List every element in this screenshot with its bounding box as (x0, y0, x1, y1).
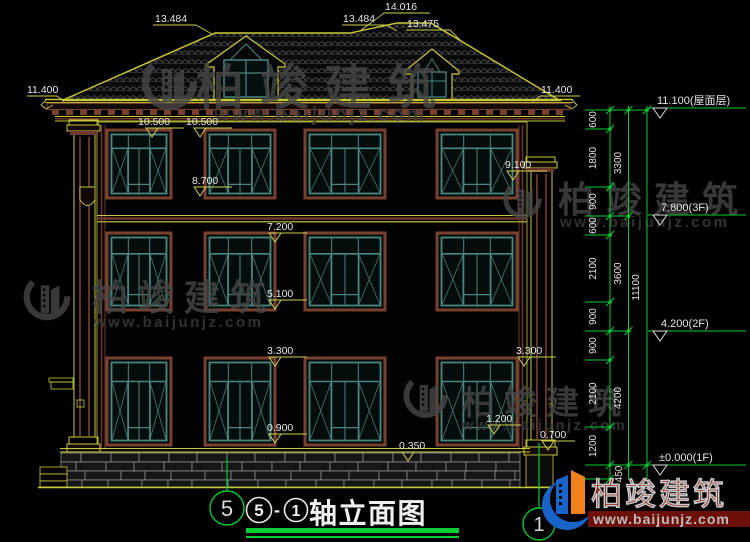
elevation-drawing: 柏竣建筑www.baijunjz.com柏竣建筑www.baijunjz.com… (0, 0, 750, 542)
stone (509, 453, 520, 462)
dentil-block (108, 110, 115, 115)
brand-logo: 柏竣建筑 www.baijunjz.com (542, 470, 750, 530)
spot-level-label: 3.300 (516, 345, 542, 357)
watermark-tower (429, 385, 437, 412)
dim-value: 2100 (588, 382, 599, 405)
stone (197, 453, 227, 462)
stone (255, 471, 291, 480)
dentil-block (556, 110, 563, 115)
watermark-window-dot (519, 201, 521, 203)
watermark-building-icon (27, 282, 68, 317)
stone (106, 462, 134, 471)
drawing-title: 5 - 1 轴立面图 (246, 497, 459, 538)
floor-level-label: 4.200(2F) (661, 318, 709, 330)
pilaster-shield-ornament (80, 187, 95, 206)
stone (374, 480, 402, 487)
cad-drawing-canvas: 柏竣建筑www.baijunjz.com柏竣建筑www.baijunjz.com… (0, 0, 750, 542)
dim-value: 900 (588, 337, 599, 354)
pilaster-base (69, 437, 98, 444)
watermark-window-dot (165, 92, 168, 95)
logo-building-right (571, 470, 585, 514)
watermark-window-dot (422, 398, 424, 400)
watermark-window-dot (165, 79, 168, 82)
stone (61, 453, 81, 462)
stone (145, 471, 171, 480)
logo-window-dot (559, 496, 562, 499)
stone (255, 453, 285, 462)
watermark-window-dot (43, 294, 45, 296)
stone (227, 453, 255, 462)
stone (330, 462, 358, 471)
dentil-block (52, 110, 59, 115)
dentil-block (164, 110, 171, 115)
title-text: 轴立面图 (309, 497, 427, 529)
floor-level-labels: 11.100(屋面层) 7.800(3F) 4.200(2F) ±0.000(1… (657, 94, 730, 464)
watermark-window-dot (422, 393, 424, 395)
dim-value: 1800 (588, 146, 599, 169)
stone (363, 453, 393, 462)
logo-window-dot (559, 484, 562, 487)
stone (465, 471, 495, 480)
stone (452, 480, 482, 487)
logo-window-dot (559, 502, 562, 505)
leader (196, 25, 212, 34)
stone (222, 462, 242, 471)
dim-value: 900 (588, 193, 599, 210)
watermark-window-dot (43, 305, 45, 307)
dentil-block (66, 110, 73, 115)
stone (321, 471, 349, 480)
stone (349, 471, 379, 480)
stone (121, 471, 145, 480)
roof-level-label: 13.475 (407, 18, 439, 30)
stone (169, 453, 197, 462)
stone (300, 462, 330, 471)
dim-value: 3300 (613, 151, 624, 174)
stone (82, 480, 108, 487)
dim-value: 600 (588, 111, 599, 128)
stone (192, 462, 222, 471)
watermark-window-dot (165, 73, 168, 76)
watermark-tower (51, 285, 60, 313)
watermark-window-dot (422, 388, 424, 390)
watermark: 柏竣建筑www.baijunjz.com (27, 277, 276, 331)
dentil-block (136, 110, 143, 115)
stone (81, 453, 111, 462)
spot-level-label: 5.100 (267, 288, 293, 300)
stone (379, 471, 407, 480)
stone (85, 471, 121, 480)
stone (416, 462, 446, 471)
logo-building-left (556, 475, 568, 514)
watermark: 柏竣建筑www.baijunjz.com (506, 179, 750, 231)
axis-bubble-left-digit: 5 (221, 496, 233, 521)
side-ledge (49, 378, 73, 382)
stone (515, 471, 520, 480)
watermark-brand-text: 柏竣建筑 (92, 277, 276, 318)
spot-level-label: 10.500 (138, 116, 170, 128)
stone (242, 462, 272, 471)
spot-level-label: 9.100 (505, 159, 531, 171)
stone (482, 480, 510, 487)
stone (510, 480, 520, 487)
title-dash: - (274, 500, 280, 520)
watermark-site-text: www.baijunjz.com (213, 104, 427, 126)
side-ledge (51, 382, 73, 389)
spot-level-label: 7.200 (267, 221, 293, 233)
stone (496, 462, 520, 471)
roof-level-label: 13.484 (343, 13, 375, 25)
stone (111, 453, 139, 462)
pilaster-capital (67, 125, 100, 131)
entry-step (40, 467, 67, 474)
level-triangle (653, 108, 667, 118)
stone (393, 453, 421, 462)
dim-value: 600 (588, 217, 599, 234)
dentil-block (500, 110, 507, 115)
stone (76, 462, 106, 471)
stone (407, 471, 437, 480)
axis-circle-from-digit: 5 (254, 501, 263, 520)
stone (285, 453, 305, 462)
stone (192, 480, 228, 487)
dim-value: 2100 (588, 257, 599, 280)
stone (171, 471, 205, 480)
spot-level-label: 11.400 (27, 84, 58, 96)
spot-level-label: 0.350 (399, 440, 425, 452)
stone (316, 480, 344, 487)
stone (139, 453, 169, 462)
stone (358, 462, 388, 471)
stone (164, 462, 192, 471)
watermark-window-dot (519, 206, 521, 208)
stone (451, 453, 479, 462)
spot-level-label: 0.900 (267, 422, 293, 434)
watermark-window-dot (519, 197, 521, 199)
stone (108, 480, 142, 487)
watermark-tower (526, 190, 533, 213)
logo-brand-text: 柏竣建筑 (591, 477, 727, 512)
stone (402, 480, 432, 487)
dentil-block (486, 110, 493, 115)
stone (437, 471, 465, 480)
spot-level-label: 1.200 (486, 413, 512, 425)
dentil-block (458, 110, 465, 115)
watermark-window-dot (43, 299, 45, 301)
stone (258, 480, 286, 487)
title-underline-thick (246, 528, 459, 533)
watermark-window-dot (422, 403, 424, 405)
roof-level-label: 14.016 (385, 1, 417, 13)
stone (286, 480, 316, 487)
dim-value: 1200 (588, 434, 599, 457)
dentil-block (94, 110, 101, 115)
stone (446, 462, 466, 471)
roof-level-label: 13.484 (155, 13, 187, 25)
spot-level-label: 3.300 (267, 345, 293, 357)
floor-level-label: ±0.000(1F) (659, 452, 713, 464)
stone (495, 471, 515, 480)
stone (272, 462, 300, 471)
entry-step (40, 474, 67, 481)
dentil-block (122, 110, 129, 115)
floor-level-label: 11.100(屋面层) (657, 94, 730, 107)
stone (228, 480, 258, 487)
watermark-window-dot (519, 192, 521, 194)
level-triangle (653, 465, 667, 475)
stone (231, 471, 255, 480)
title-underline-thin (246, 536, 459, 538)
axis-circle-to-digit: 1 (292, 503, 301, 520)
stone (344, 480, 374, 487)
logo-site-text: www.baijunjz.com (592, 511, 730, 527)
spot-level-label: 0.700 (540, 429, 566, 441)
dim-value: 3600 (613, 262, 624, 285)
stone (168, 480, 192, 487)
stone (479, 453, 509, 462)
watermark-window-dot (43, 288, 45, 290)
dentil-block (80, 110, 87, 115)
watermark-site-text: www.baijunjz.com (559, 214, 729, 231)
stone (134, 462, 164, 471)
level-triangle (653, 331, 667, 341)
watermark-window-dot (165, 86, 168, 89)
stone (466, 462, 496, 471)
watermark-site-text: www.baijunjz.com (93, 314, 263, 331)
dentil-block (542, 110, 549, 115)
floor-level-label: 7.800(3F) (661, 202, 709, 214)
dentil-block (150, 110, 157, 115)
watermark-tower (174, 69, 184, 102)
dim-value: 4200 (613, 386, 624, 409)
pilaster-capital-band (70, 131, 97, 135)
stone (421, 453, 451, 462)
dentil-block (528, 110, 535, 115)
stone (388, 462, 416, 471)
stone (142, 480, 168, 487)
stone (305, 453, 335, 462)
axis-bubble-right-digit: 1 (533, 514, 544, 536)
dim-value: 900 (588, 308, 599, 325)
logo-window-dot (559, 490, 562, 493)
dentil-block (472, 110, 479, 115)
spot-level-label: 10.500 (186, 116, 218, 128)
stone (291, 471, 321, 480)
stone (432, 480, 452, 487)
dentil-block (514, 110, 521, 115)
stone (335, 453, 363, 462)
spot-level-label: 11.400 (541, 84, 572, 96)
dentil-block (178, 110, 185, 115)
spot-level-label: 8.700 (192, 175, 218, 187)
dim-value: 11100 (631, 274, 642, 301)
entry-step (40, 481, 67, 487)
